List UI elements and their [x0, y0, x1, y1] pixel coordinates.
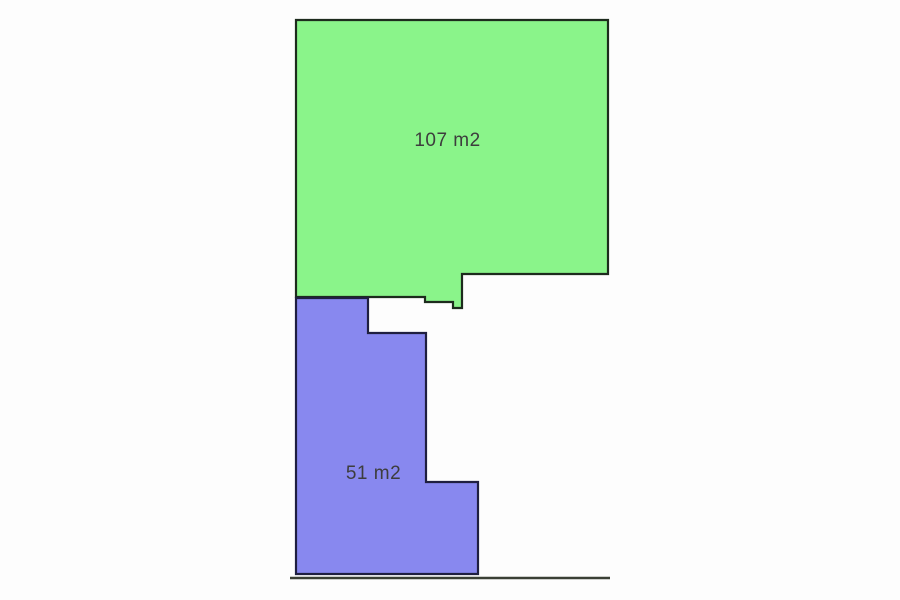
plan-canvas: 107 m251 m2 — [0, 0, 900, 600]
plan-svg: 107 m251 m2 — [0, 0, 900, 600]
parcel-blue-area-label: 51 m2 — [346, 463, 401, 484]
parcel-blue-shape — [296, 298, 478, 574]
parcel-green-shape — [296, 20, 608, 308]
parcel-green-area-label: 107 m2 — [414, 130, 480, 151]
